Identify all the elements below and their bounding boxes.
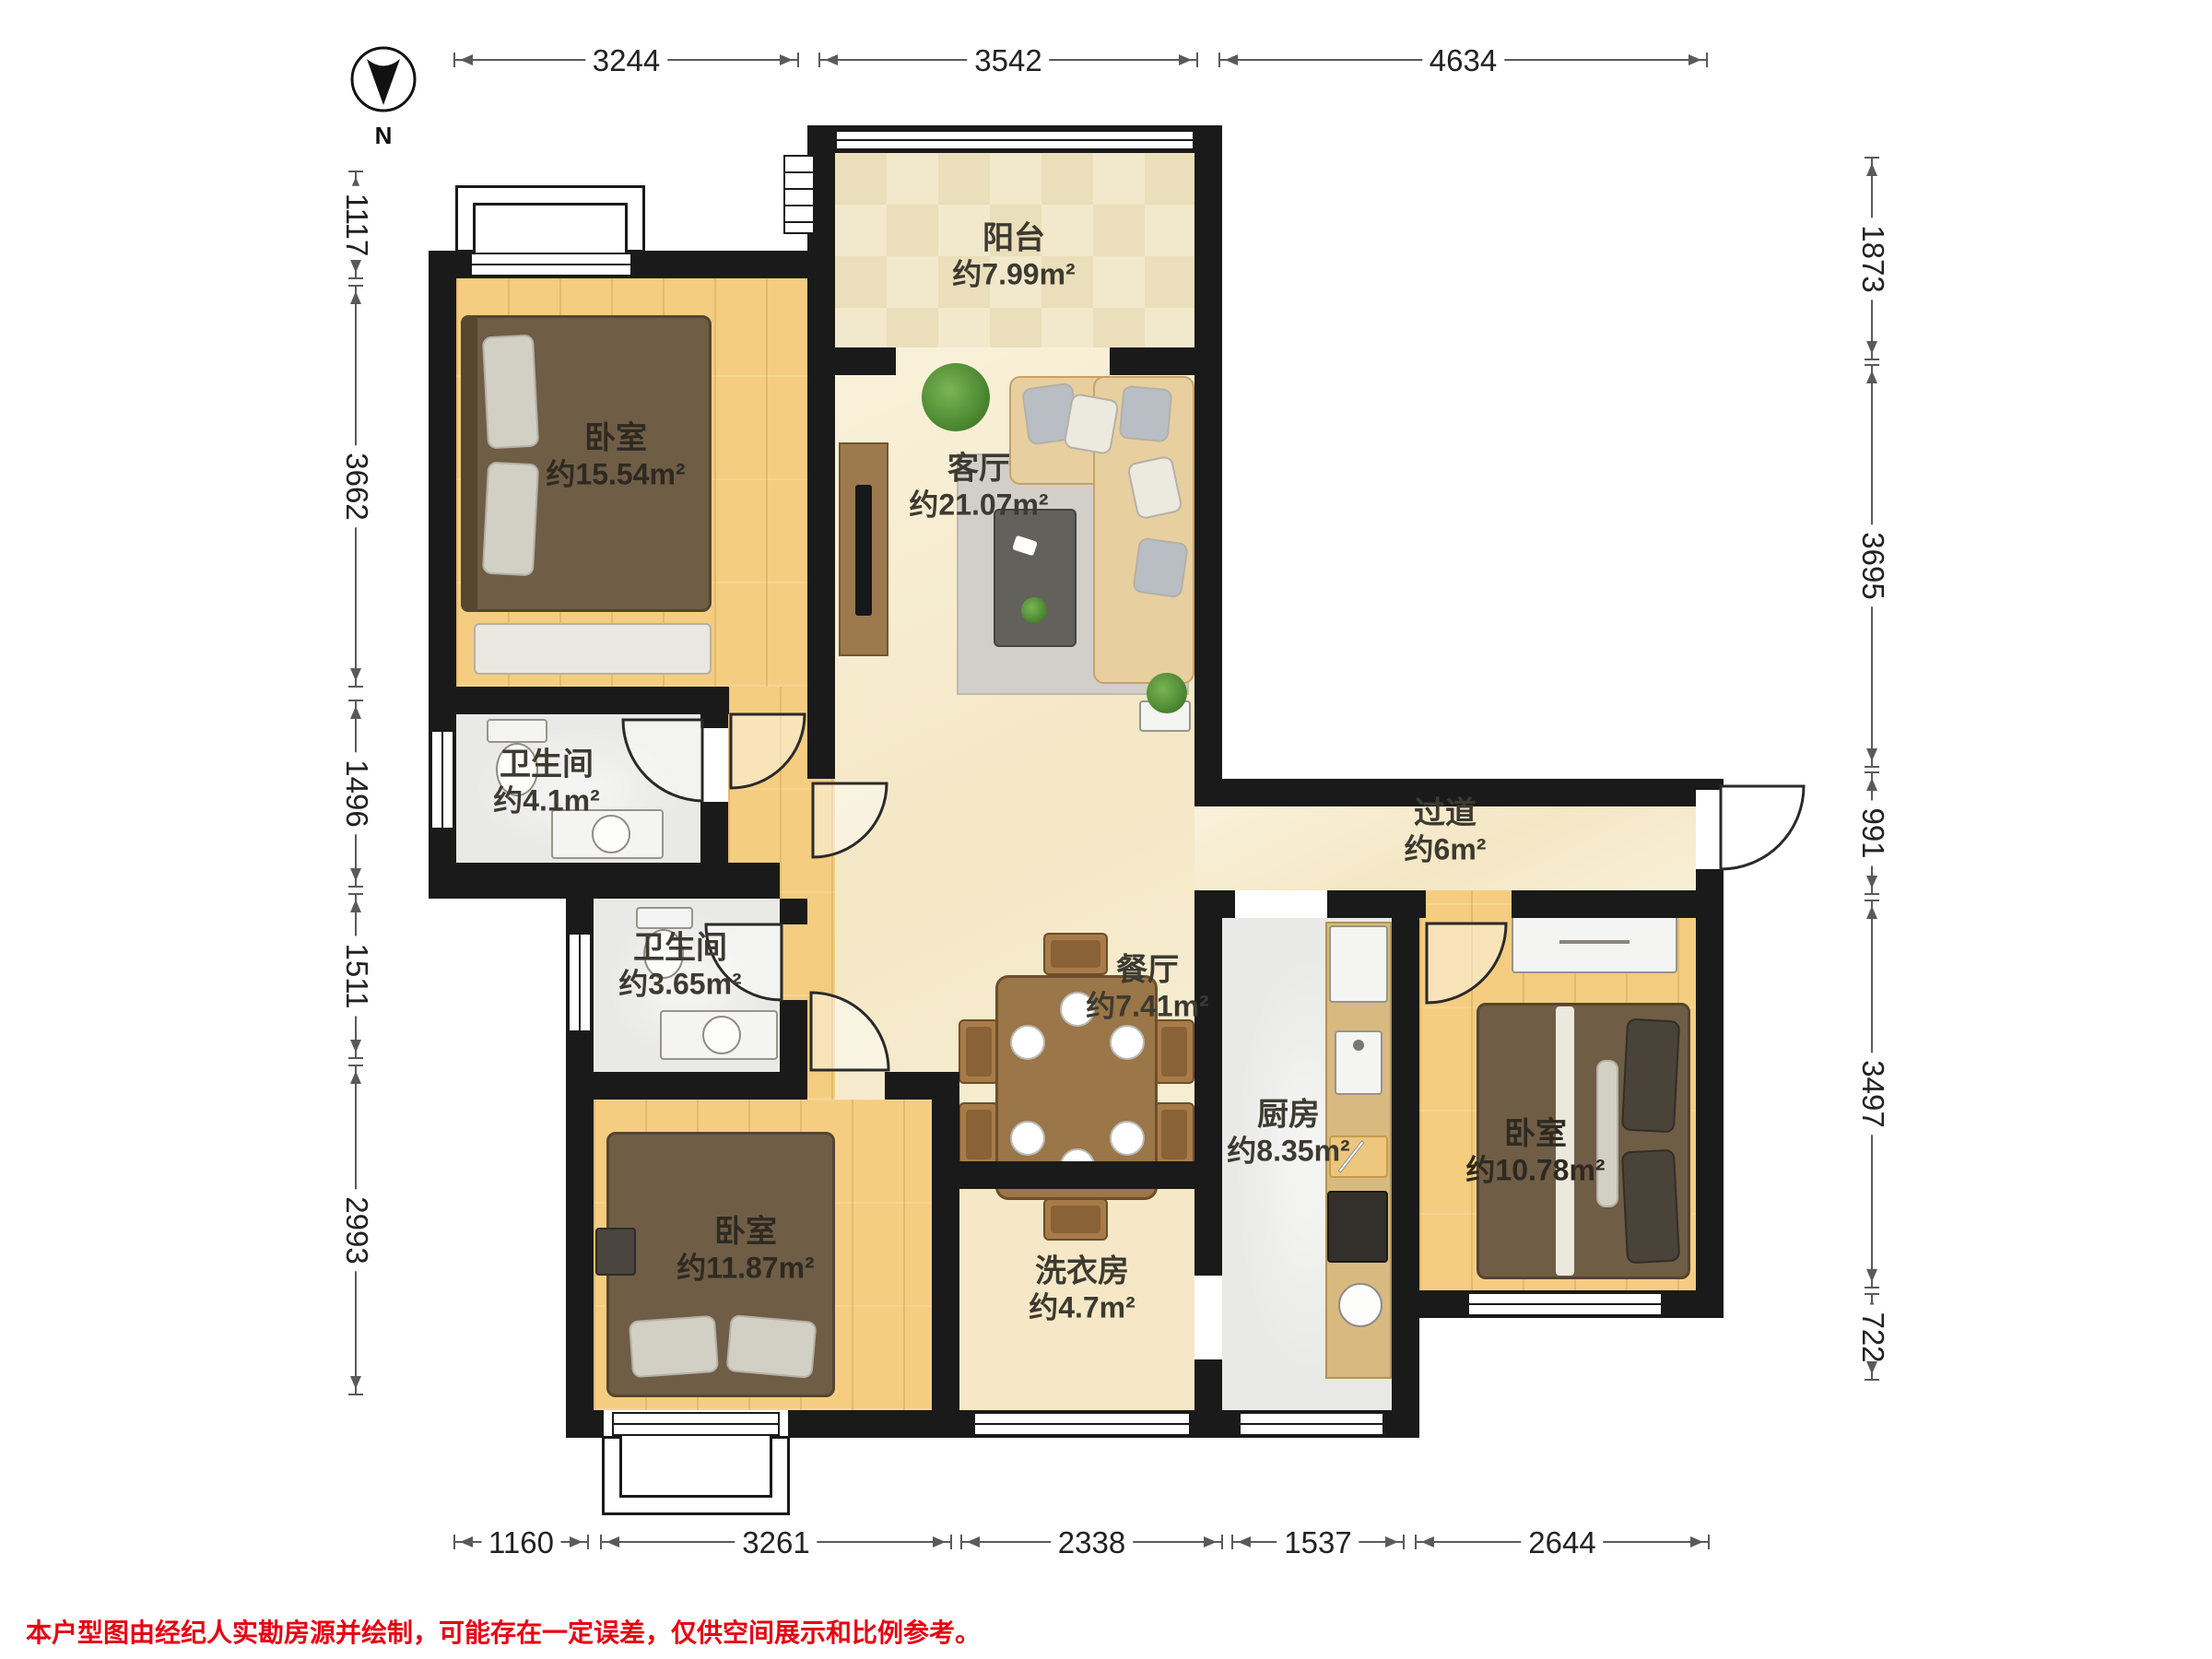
room-label-dining: 餐厅约7.41m² [1086, 953, 1208, 1024]
dim-value: 1160 [481, 1525, 561, 1560]
washbasin [702, 1016, 741, 1054]
table-plant-icon [1021, 597, 1047, 623]
room-area: 约6m² [1405, 834, 1487, 867]
dim-tick [950, 1535, 952, 1549]
room-label-hallway: 过道约6m² [1405, 796, 1487, 867]
dim-tick [348, 700, 363, 701]
room-name: 卫生间 [500, 747, 594, 782]
room-label-bath1: 卫生间约4.1m² [493, 747, 600, 818]
dim-value: 3261 [735, 1525, 817, 1560]
dim-value: 3497 [1855, 1053, 1890, 1135]
dim-value: 3695 [1855, 524, 1890, 606]
room-area: 约7.41m² [1086, 991, 1208, 1024]
sofa-pillow [1132, 537, 1189, 599]
dim-value: 3542 [967, 43, 1049, 78]
dim-left-0: 1117 [355, 171, 357, 278]
washbasin [592, 815, 630, 853]
dim-tick [1865, 900, 1879, 901]
dim-tick [1865, 364, 1879, 366]
room-area: 约8.35m² [1227, 1135, 1349, 1169]
wall-segment [780, 1000, 807, 1100]
coffee-table [994, 509, 1077, 647]
dim-value: 1496 [339, 752, 374, 834]
dim-tick [1706, 53, 1708, 67]
room-area: 约3.65m² [618, 969, 741, 1002]
dim-tick [348, 1057, 363, 1059]
room-name: 卫生间 [633, 931, 727, 966]
dim-bottom-3: 1537 [1232, 1541, 1404, 1543]
pillow [1621, 1018, 1680, 1134]
dim-tick [1865, 893, 1879, 895]
dim-value: 3662 [339, 445, 374, 527]
dim-left-4: 2993 [355, 1065, 357, 1394]
hall-corridor-door [809, 780, 892, 863]
window [612, 1412, 780, 1436]
dim-tick [960, 1535, 962, 1549]
room-name: 卧室 [714, 1215, 777, 1250]
wall-segment [700, 802, 728, 890]
north-compass-icon: N [337, 31, 429, 151]
room-name: 卧室 [584, 421, 647, 456]
compass-label: N [375, 122, 393, 149]
balcony-side-window [783, 155, 815, 234]
pillow [482, 335, 539, 450]
room-name: 厨房 [1257, 1098, 1320, 1133]
disclaimer-text: 本户型图由经纪人实勘房源并绘制，可能存在一定误差，仅供空间展示和比例参考。 [26, 1613, 981, 1650]
bay-window [455, 185, 645, 253]
room-name: 卧室 [1504, 1117, 1567, 1152]
dim-tick [1865, 771, 1879, 773]
room-name: 餐厅 [1116, 953, 1179, 988]
dim-tick [348, 277, 363, 279]
dim-tick [1865, 359, 1879, 360]
dim-tick [348, 686, 363, 688]
room-area: 约4.1m² [493, 785, 600, 818]
plate [1010, 1121, 1045, 1156]
room-area: 约10.78m² [1465, 1155, 1605, 1188]
plate [1110, 1025, 1145, 1060]
dim-bottom-0: 1160 [454, 1541, 588, 1543]
dining-chair [959, 1102, 999, 1167]
dim-bottom-1: 3261 [601, 1541, 951, 1543]
room-label-bedroom-r: 卧室约10.78m² [1465, 1117, 1605, 1188]
nightstand [595, 1228, 636, 1276]
wall-segment [1194, 1359, 1222, 1438]
stove [1327, 1191, 1388, 1263]
tv [855, 485, 872, 616]
wall-segment [429, 687, 729, 714]
dim-bottom-2: 2338 [961, 1541, 1222, 1543]
room-label-living: 客厅约21.07m² [909, 452, 1048, 523]
sofa-pillow [1119, 385, 1173, 442]
dim-value: 2993 [339, 1189, 374, 1271]
window [568, 933, 592, 1032]
dim-tick [587, 1535, 589, 1549]
wall-segment [932, 1072, 959, 1438]
dim-top-0: 3244 [454, 59, 798, 61]
dining-chair [959, 1019, 999, 1084]
dim-top-1: 3542 [819, 59, 1197, 61]
bay-window-inner [619, 1436, 772, 1498]
wall-segment [1392, 918, 1419, 1438]
wall-segment [1696, 869, 1724, 1318]
dim-value: 2644 [1521, 1525, 1603, 1560]
room-area: 约4.7m² [1029, 1292, 1135, 1325]
dim-value: 2338 [1051, 1525, 1133, 1560]
plate [1010, 1025, 1045, 1060]
dining-chair [1154, 1102, 1194, 1167]
dim-tick [797, 53, 799, 67]
bedroom-bl-door [807, 989, 890, 1074]
wall-segment [1512, 890, 1696, 918]
room-area: 约7.99m² [952, 259, 1075, 292]
window [973, 1412, 1191, 1436]
dim-tick [453, 53, 455, 67]
fridge [1329, 925, 1388, 1003]
dim-tick [348, 285, 363, 287]
dim-value: 1117 [339, 186, 374, 265]
dim-tick [348, 171, 363, 172]
entry-door [1716, 777, 1812, 873]
toilet [636, 907, 693, 929]
room-label-laundry: 洗衣房约4.7m² [1029, 1254, 1135, 1325]
room-name: 客厅 [947, 452, 1010, 487]
balcony-glazing-window [835, 130, 1194, 150]
wall-segment [1194, 890, 1222, 1276]
dim-tick [1865, 1293, 1879, 1295]
dim-right-3: 3497 [1871, 900, 1873, 1288]
pillow [725, 1314, 817, 1379]
window [430, 730, 454, 829]
dim-tick [600, 1535, 602, 1549]
pillow [1621, 1149, 1680, 1265]
dim-right-0: 1873 [1871, 158, 1873, 359]
headboard [461, 315, 477, 612]
dim-tick [1865, 766, 1879, 768]
dim-right-1: 3695 [1871, 365, 1873, 767]
dim-tick [1231, 1535, 1233, 1549]
dim-tick [348, 893, 363, 895]
room-label-bath2: 卫生间约3.65m² [618, 931, 741, 1002]
toilet [487, 719, 547, 743]
room-area: 约21.07m² [909, 489, 1048, 523]
window [470, 253, 632, 276]
dim-left-1: 3662 [355, 286, 357, 687]
dim-tick [1196, 53, 1198, 67]
dim-value: 722 [1855, 1304, 1890, 1370]
dim-tick [348, 1394, 363, 1395]
bath1-door [619, 716, 706, 803]
wall-segment [1327, 890, 1426, 918]
window [1239, 1412, 1384, 1436]
bedroom-tl-door [727, 711, 808, 792]
faucet-icon [1353, 1040, 1364, 1051]
floorplan-canvas: N [0, 0, 2212, 1659]
dim-tick [1865, 1379, 1879, 1381]
dim-left-3: 1511 [355, 894, 357, 1058]
sofa-pillow [1063, 393, 1120, 455]
plant-icon [1147, 673, 1187, 713]
wall-segment [1194, 125, 1222, 806]
dining-chair [1043, 1198, 1108, 1241]
dim-value: 1873 [1855, 218, 1890, 300]
window [1467, 1292, 1663, 1316]
bedroom-r-door [1423, 920, 1510, 1006]
dim-value: 1511 [339, 936, 374, 1017]
dining-chair [1154, 1019, 1194, 1084]
dim-tick [1221, 1535, 1223, 1549]
dim-tick [1708, 1535, 1710, 1549]
dim-value: 1537 [1277, 1525, 1359, 1560]
dresser-handle [1559, 940, 1630, 944]
room-area: 约11.87m² [677, 1253, 814, 1286]
dim-right-4: 722 [1871, 1294, 1873, 1380]
dim-right-2: 991 [1871, 772, 1873, 894]
wall-segment [932, 1161, 1194, 1189]
room-area: 约15.54m² [546, 459, 685, 492]
wall-segment [566, 1072, 807, 1100]
dim-tick [818, 53, 820, 67]
dim-tick [348, 886, 363, 888]
dim-tick [1415, 1535, 1417, 1549]
room-name: 阳台 [982, 221, 1045, 256]
kitchen-bowl [1338, 1283, 1382, 1327]
dim-tick [1218, 53, 1220, 67]
room-name: 洗衣房 [1035, 1254, 1129, 1289]
dim-value: 3244 [585, 43, 667, 78]
dim-tick [1865, 157, 1879, 159]
room-label-balcony: 阳台约7.99m² [952, 221, 1075, 292]
dim-value: 991 [1855, 800, 1890, 865]
room-label-bedroom-tl: 卧室约15.54m² [546, 421, 685, 492]
dim-left-2: 1496 [355, 700, 357, 887]
dim-tick [453, 1535, 455, 1549]
plate [1110, 1121, 1145, 1156]
room-name: 过道 [1414, 796, 1477, 831]
room-label-bedroom-bl: 卧室约11.87m² [677, 1215, 814, 1286]
bedroom-bench [474, 623, 712, 675]
bay-window-inner [473, 203, 628, 253]
dim-tick [1403, 1535, 1405, 1549]
pillow [629, 1315, 719, 1378]
dim-tick [348, 1065, 363, 1066]
room-label-kitchen: 厨房约8.35m² [1227, 1098, 1349, 1169]
plant-icon [922, 363, 990, 431]
dim-tick [1865, 1287, 1879, 1288]
pillow [482, 462, 539, 577]
dim-top-2: 4634 [1219, 59, 1707, 61]
bay-window [602, 1436, 790, 1515]
dim-bottom-4: 2644 [1416, 1541, 1709, 1543]
dim-value: 4634 [1422, 43, 1504, 78]
